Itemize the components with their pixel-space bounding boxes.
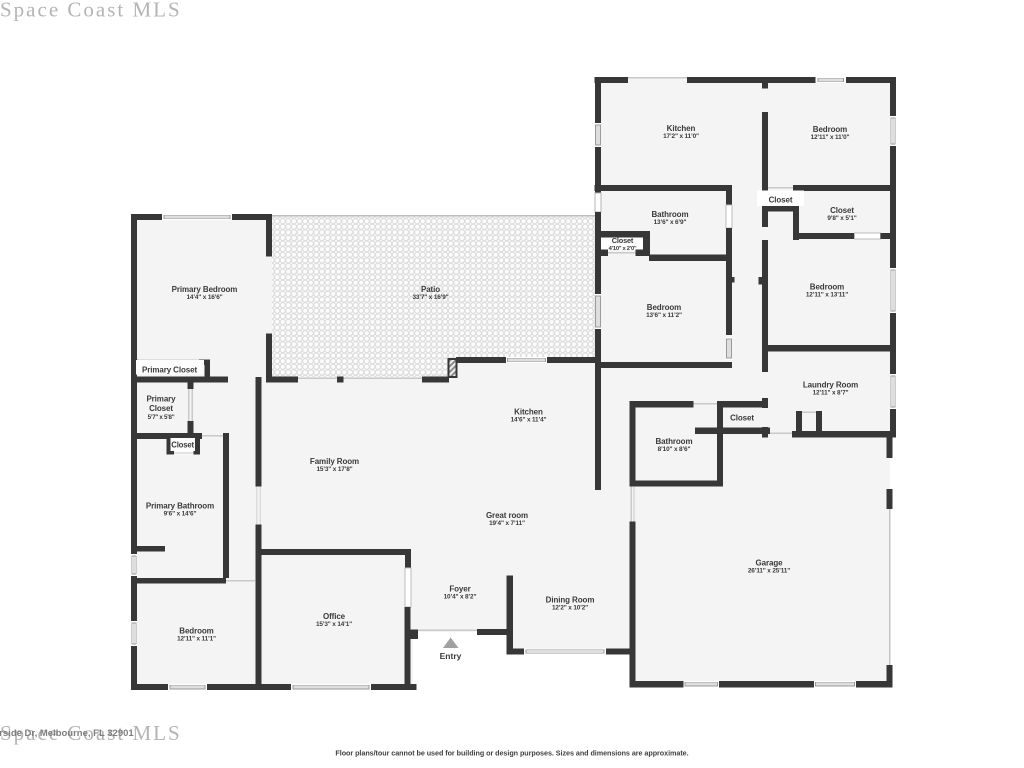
svg-text:10’4" x 8’2": 10’4" x 8’2" bbox=[444, 594, 477, 601]
svg-text:17’2" x 11’0": 17’2" x 11’0" bbox=[663, 133, 699, 140]
svg-text:15’3" x 17’8": 15’3" x 17’8" bbox=[316, 466, 352, 473]
svg-text:33’7" x 16’9": 33’7" x 16’9" bbox=[412, 294, 448, 301]
svg-text:Primary Bathroom: Primary Bathroom bbox=[146, 502, 214, 511]
svg-text:Family Room: Family Room bbox=[310, 457, 359, 466]
svg-text:Patio: Patio bbox=[421, 285, 440, 294]
svg-text:Bedroom: Bedroom bbox=[810, 283, 844, 292]
svg-text:14’6" x 11’4": 14’6" x 11’4" bbox=[511, 417, 547, 424]
svg-text:Closet: Closet bbox=[830, 206, 854, 215]
svg-text:12’11" x 11’0": 12’11" x 11’0" bbox=[811, 134, 850, 141]
svg-text:5’7" x 5’8": 5’7" x 5’8" bbox=[148, 414, 175, 421]
svg-text:15’3" x 14’1": 15’3" x 14’1" bbox=[316, 621, 352, 628]
svg-text:Closet: Closet bbox=[171, 441, 194, 450]
svg-text:Primary Bedroom: Primary Bedroom bbox=[172, 285, 238, 294]
svg-text:12’11" x 11’1": 12’11" x 11’1" bbox=[177, 636, 216, 643]
svg-text:Entry: Entry bbox=[440, 651, 462, 661]
svg-text:Garage: Garage bbox=[756, 559, 784, 568]
svg-text:9’6" x 14’6": 9’6" x 14’6" bbox=[164, 511, 197, 518]
svg-text:4’10" x 2’0": 4’10" x 2’0" bbox=[609, 246, 637, 252]
svg-text:12’11" x 8’7": 12’11" x 8’7" bbox=[813, 390, 849, 397]
svg-text:Bedroom: Bedroom bbox=[813, 125, 847, 134]
svg-text:Laundry Room: Laundry Room bbox=[803, 381, 858, 390]
svg-text:Great room: Great room bbox=[486, 511, 528, 520]
svg-text:Closet: Closet bbox=[612, 236, 634, 245]
svg-text:Primary: Primary bbox=[146, 395, 176, 404]
svg-text:Dining Room: Dining Room bbox=[546, 596, 595, 605]
svg-text:8’10" x 8’6": 8’10" x 8’6" bbox=[658, 446, 691, 453]
svg-text:14’4" x 16’6": 14’4" x 16’6" bbox=[186, 294, 222, 301]
svg-text:Bathroom: Bathroom bbox=[656, 437, 693, 446]
svg-text:iverside Dr, Melbourne, FL 329: iverside Dr, Melbourne, FL 32901 bbox=[0, 728, 134, 739]
svg-text:Bedroom: Bedroom bbox=[647, 303, 681, 312]
svg-text:Primary Closet: Primary Closet bbox=[142, 366, 198, 375]
svg-text:19’4" x 7’11": 19’4" x 7’11" bbox=[489, 520, 525, 527]
svg-text:12’11" x 13’11": 12’11" x 13’11" bbox=[806, 292, 848, 299]
svg-text:Kitchen: Kitchen bbox=[514, 408, 543, 417]
svg-text:13’6" x 11’2": 13’6" x 11’2" bbox=[646, 312, 682, 319]
svg-text:Office: Office bbox=[323, 612, 346, 621]
svg-text:Closet: Closet bbox=[730, 414, 754, 423]
svg-text:26’11" x 25’11": 26’11" x 25’11" bbox=[748, 568, 790, 575]
svg-text:Closet: Closet bbox=[149, 404, 173, 413]
svg-text:Foyer: Foyer bbox=[449, 585, 470, 594]
svg-text:Closet: Closet bbox=[769, 196, 793, 205]
svg-text:Kitchen: Kitchen bbox=[667, 124, 696, 133]
svg-text:Space Coast MLS: Space Coast MLS bbox=[0, 0, 182, 22]
svg-text:Bedroom: Bedroom bbox=[179, 627, 213, 636]
svg-text:12’2" x 10’2": 12’2" x 10’2" bbox=[552, 605, 588, 612]
svg-text:9’8" x 5’1": 9’8" x 5’1" bbox=[827, 215, 856, 222]
svg-text:Bathroom: Bathroom bbox=[652, 210, 689, 219]
svg-text:13’6" x 6’9": 13’6" x 6’9" bbox=[654, 219, 687, 226]
svg-text:Floor plans/tour cannot be use: Floor plans/tour cannot be used for buil… bbox=[335, 749, 688, 758]
